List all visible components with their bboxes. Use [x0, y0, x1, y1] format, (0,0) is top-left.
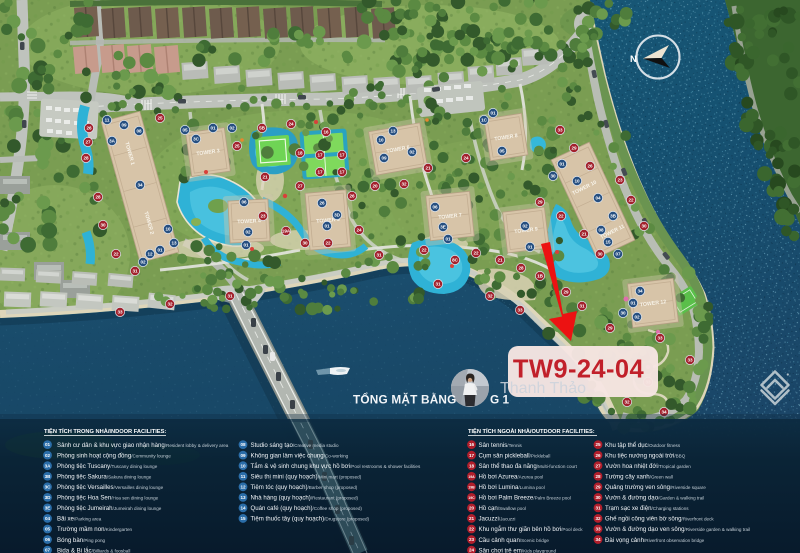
- svg-text:31: 31: [579, 304, 585, 309]
- svg-text:23: 23: [260, 214, 266, 219]
- svg-text:3A: 3A: [109, 139, 116, 144]
- svg-text:26: 26: [595, 453, 601, 458]
- svg-text:22: 22: [421, 248, 427, 253]
- svg-text:Tiệm thuốc tây (quy hoạch)/Dru: Tiệm thuốc tây (quy hoạch)/Drugstore (pr…: [251, 516, 370, 523]
- svg-text:08: 08: [240, 442, 246, 447]
- svg-text:Phòng tiệc Sakura/Sakura dinin: Phòng tiệc Sakura/Sakura dining lounge: [57, 473, 152, 480]
- svg-text:06: 06: [432, 205, 438, 210]
- svg-text:Trường mầm non/Kindergarten: Trường mầm non/Kindergarten: [57, 526, 133, 533]
- svg-text:TOWER 4: TOWER 4: [237, 218, 261, 225]
- svg-text:31: 31: [132, 269, 138, 274]
- svg-text:17: 17: [317, 170, 323, 175]
- svg-text:3B: 3B: [45, 474, 52, 479]
- svg-text:07: 07: [615, 252, 621, 257]
- svg-text:31: 31: [435, 282, 441, 287]
- svg-text:3E: 3E: [45, 506, 51, 511]
- svg-text:Cầu cảnh quan/Scenic bridge: Cầu cảnh quan/Scenic bridge: [479, 537, 550, 544]
- svg-text:3A: 3A: [45, 463, 52, 468]
- svg-text:22: 22: [473, 251, 479, 256]
- svg-text:10: 10: [240, 463, 246, 468]
- svg-text:28: 28: [95, 195, 101, 200]
- svg-text:N: N: [630, 54, 637, 65]
- svg-text:31: 31: [595, 506, 601, 511]
- svg-text:17: 17: [469, 453, 475, 458]
- svg-text:02: 02: [245, 230, 251, 235]
- svg-text:33: 33: [595, 527, 601, 532]
- svg-text:Studio sáng tạo/Creative media: Studio sáng tạo/Creative media studio: [251, 442, 340, 449]
- svg-text:26: 26: [86, 126, 92, 131]
- svg-text:04: 04: [595, 196, 601, 201]
- svg-text:29: 29: [537, 200, 543, 205]
- svg-text:06: 06: [241, 200, 247, 205]
- svg-text:33: 33: [517, 308, 523, 313]
- svg-text:Nhà hàng (quy hoạch)/Restauran: Nhà hàng (quy hoạch)/Restaurant (propose…: [251, 495, 359, 502]
- svg-text:19B: 19B: [468, 485, 475, 489]
- svg-text:Hồ bơi Palm Breeze/Palm Breeze: Hồ bơi Palm Breeze/Palm Breeze pool: [479, 495, 571, 502]
- svg-text:10: 10: [574, 179, 580, 184]
- svg-text:5B: 5B: [259, 126, 266, 131]
- svg-text:02: 02: [634, 315, 640, 320]
- svg-text:25: 25: [157, 116, 163, 121]
- svg-text:16: 16: [323, 130, 329, 135]
- svg-text:21: 21: [262, 175, 268, 180]
- svg-text:11: 11: [105, 118, 110, 123]
- svg-text:22: 22: [628, 198, 634, 203]
- svg-text:Bida & Bi lắc/Billiards & foos: Bida & Bi lắc/Billiards & foosball: [57, 547, 130, 553]
- svg-text:27: 27: [297, 184, 303, 189]
- svg-text:10: 10: [378, 138, 384, 143]
- svg-text:13: 13: [171, 241, 177, 246]
- svg-text:17: 17: [339, 153, 345, 158]
- svg-text:28: 28: [595, 474, 601, 479]
- svg-text:24: 24: [469, 548, 475, 553]
- svg-text:Đài vọng cảnh/Riverfront obser: Đài vọng cảnh/Riverfront observation bri…: [605, 537, 705, 544]
- svg-text:08: 08: [136, 129, 142, 134]
- svg-text:08: 08: [598, 228, 604, 233]
- svg-text:33: 33: [117, 310, 123, 315]
- svg-text:23: 23: [617, 178, 623, 183]
- svg-text:28: 28: [518, 266, 524, 271]
- svg-text:Phòng tiệc Jumeirah/Jumeirah d: Phòng tiệc Jumeirah/Jumeirah dining loun…: [57, 505, 162, 512]
- svg-text:TỔNG MẶT BẰNG: TỔNG MẶT BẰNG: [353, 393, 457, 407]
- svg-text:33: 33: [557, 128, 563, 133]
- svg-text:33: 33: [657, 336, 663, 341]
- svg-text:Hồ bơi Lumina/Lumina pool: Hồ bơi Lumina/Lumina pool: [479, 484, 545, 491]
- svg-text:TIỆN TÍCH TRONG NHÀ/INDOOR FAC: TIỆN TÍCH TRONG NHÀ/INDOOR FACILITIES:: [44, 427, 166, 435]
- svg-text:3C: 3C: [45, 484, 52, 489]
- svg-text:Sân tennis/Tennis: Sân tennis/Tennis: [479, 442, 523, 449]
- svg-text:09: 09: [381, 156, 387, 161]
- svg-text:11: 11: [241, 474, 246, 479]
- svg-text:13: 13: [240, 495, 246, 500]
- svg-text:22: 22: [113, 252, 119, 257]
- svg-text:Quảng trường ven sông/Riversid: Quảng trường ven sông/Riverside square: [605, 484, 706, 491]
- svg-text:01: 01: [559, 162, 565, 167]
- svg-text:29: 29: [607, 326, 613, 331]
- svg-text:Tường cây xanh/Green wall: Tường cây xanh/Green wall: [605, 473, 673, 480]
- svg-text:TIỆN TÍCH NGOÀI NHÀ/OUTDOOR FA: TIỆN TÍCH NGOÀI NHÀ/OUTDOOR FACILITIES:: [468, 427, 595, 435]
- svg-text:05: 05: [45, 527, 51, 532]
- svg-text:Sảnh cư dân & khu vực giao nhậ: Sảnh cư dân & khu vực giao nhận hàng/Res…: [57, 442, 229, 449]
- svg-text:Khu tập thể dục/Outdoor fitnes: Khu tập thể dục/Outdoor fitness: [605, 442, 681, 449]
- svg-text:27: 27: [595, 463, 601, 468]
- svg-text:18: 18: [469, 463, 475, 468]
- svg-text:Khu tiệc nướng ngoài trời/BBQ: Khu tiệc nướng ngoài trời/BBQ: [605, 452, 686, 459]
- svg-text:30: 30: [302, 241, 308, 246]
- svg-text:26: 26: [587, 164, 593, 169]
- svg-text:32: 32: [624, 400, 630, 405]
- svg-text:Hồ bơi Azurea/Azurea pool: Hồ bơi Azurea/Azurea pool: [479, 473, 544, 480]
- svg-text:Ghế ngồi công viên bờ sông/Riv: Ghế ngồi công viên bờ sông/Riverfront de…: [605, 516, 714, 523]
- svg-text:04: 04: [45, 516, 51, 521]
- svg-text:3D: 3D: [334, 213, 341, 218]
- svg-text:22: 22: [325, 241, 331, 246]
- svg-text:G 1: G 1: [490, 393, 509, 407]
- svg-text:20: 20: [469, 506, 475, 511]
- svg-text:18: 18: [297, 151, 303, 156]
- svg-text:15: 15: [605, 240, 611, 245]
- svg-text:28: 28: [83, 156, 89, 161]
- svg-text:26: 26: [349, 194, 355, 199]
- svg-text:34: 34: [595, 537, 601, 542]
- svg-text:12: 12: [240, 484, 246, 489]
- svg-text:30: 30: [550, 174, 556, 179]
- svg-text:Cụm sân pickleball/Pickleball: Cụm sân pickleball/Pickleball: [479, 452, 551, 459]
- svg-text:01: 01: [324, 224, 330, 229]
- svg-text:21: 21: [425, 166, 431, 171]
- svg-text:30: 30: [641, 224, 647, 229]
- svg-text:Siêu thị mini (quy hoạch)/Mini: Siêu thị mini (quy hoạch)/Mini mart (pro…: [251, 473, 362, 480]
- svg-text:01: 01: [527, 245, 533, 250]
- svg-text:Tiệm tóc (quy hoạch)/Barber sh: Tiệm tóc (quy hoạch)/Barber shop (propos…: [251, 484, 358, 491]
- svg-text:30: 30: [100, 223, 106, 228]
- svg-text:02: 02: [409, 150, 415, 155]
- svg-text:26: 26: [319, 201, 325, 206]
- svg-text:29: 29: [595, 484, 601, 489]
- svg-text:25: 25: [234, 144, 240, 149]
- svg-text:34: 34: [661, 410, 667, 415]
- svg-text:1C: 1C: [481, 118, 488, 123]
- svg-text:24: 24: [463, 156, 469, 161]
- svg-text:32: 32: [595, 516, 601, 521]
- svg-text:19C: 19C: [468, 496, 475, 500]
- svg-text:21: 21: [581, 232, 587, 237]
- svg-text:01: 01: [210, 126, 216, 131]
- svg-text:01: 01: [243, 243, 249, 248]
- svg-text:21: 21: [497, 258, 503, 263]
- svg-text:30: 30: [620, 311, 626, 316]
- svg-text:Sân chơi trẻ em/Kids playgroun: Sân chơi trẻ em/Kids playground: [479, 547, 557, 553]
- svg-text:12: 12: [147, 252, 153, 257]
- svg-text:10: 10: [165, 227, 171, 232]
- svg-text:34: 34: [137, 183, 143, 188]
- svg-text:Bãi xe/Parking area: Bãi xe/Parking area: [57, 516, 102, 523]
- svg-text:23: 23: [469, 537, 475, 542]
- svg-text:20: 20: [372, 184, 378, 189]
- svg-text:19A: 19A: [282, 229, 291, 234]
- svg-text:Sân thể thao đa năng/Multi-fun: Sân thể thao đa năng/Multi-function cour…: [479, 463, 578, 470]
- svg-text:3D: 3D: [45, 495, 52, 500]
- svg-text:3C: 3C: [193, 137, 200, 142]
- svg-text:22: 22: [469, 527, 475, 532]
- svg-text:17: 17: [317, 153, 323, 158]
- svg-text:1B: 1B: [537, 274, 544, 279]
- svg-text:07: 07: [45, 548, 51, 553]
- svg-text:27: 27: [85, 140, 91, 145]
- svg-text:Thanh Thảo: Thanh Thảo: [500, 380, 586, 397]
- svg-text:Bóng bàn/Ping pong: Bóng bàn/Ping pong: [57, 537, 106, 544]
- svg-text:Khu ngắm thư giãn bên hồ bơi/P: Khu ngắm thư giãn bên hồ bơi/Pool deck: [479, 526, 584, 533]
- svg-text:Phòng sinh hoạt cộng đồng/Comm: Phòng sinh hoạt cộng đồng/Community loun…: [57, 452, 171, 459]
- svg-text:Jacuzzi/Jacuzzi: Jacuzzi/Jacuzzi: [479, 516, 516, 523]
- svg-text:17: 17: [339, 170, 345, 175]
- svg-text:32: 32: [401, 182, 407, 187]
- svg-text:29: 29: [571, 146, 577, 151]
- svg-text:09: 09: [121, 123, 127, 128]
- svg-text:31: 31: [227, 294, 233, 299]
- svg-text:01: 01: [445, 237, 451, 242]
- svg-text:Phòng tiệc Versailles/Versaill: Phòng tiệc Versailles/Versailles dining …: [57, 484, 164, 491]
- svg-text:06: 06: [45, 537, 51, 542]
- svg-text:31: 31: [376, 253, 382, 258]
- svg-text:24: 24: [356, 228, 362, 233]
- svg-text:09: 09: [240, 453, 246, 458]
- svg-text:02: 02: [45, 453, 51, 458]
- svg-text:01: 01: [630, 301, 636, 306]
- svg-text:25: 25: [595, 442, 601, 447]
- svg-text:29: 29: [563, 290, 569, 295]
- svg-text:33: 33: [687, 358, 693, 363]
- svg-text:21: 21: [469, 516, 475, 521]
- svg-text:Hồ cạn/Swallow pool: Hồ cạn/Swallow pool: [479, 505, 526, 512]
- svg-text:Phòng tiệc Hoa Sen/Hoa sen din: Phòng tiệc Hoa Sen/Hoa sen dining lounge: [57, 495, 159, 502]
- svg-text:02: 02: [140, 260, 146, 265]
- svg-text:Trạm sạc xe điện/Charging stat: Trạm sạc xe điện/Charging stations: [605, 505, 689, 512]
- svg-text:02: 02: [229, 126, 235, 131]
- svg-text:02: 02: [522, 224, 528, 229]
- svg-text:15: 15: [240, 516, 246, 521]
- svg-text:Quán café (quy hoạch)/Coffee s: Quán café (quy hoạch)/Coffee shop (propo…: [251, 505, 363, 512]
- svg-text:Phòng tiệc Tuscany/Tuscany din: Phòng tiệc Tuscany/Tuscany dining lounge: [57, 463, 158, 470]
- svg-text:19A: 19A: [468, 475, 475, 479]
- svg-text:13: 13: [390, 129, 396, 134]
- svg-text:22: 22: [558, 214, 564, 219]
- svg-text:01: 01: [45, 442, 51, 447]
- svg-text:05: 05: [182, 128, 188, 133]
- svg-text:Vườn & đường dạo/Garden & walk: Vườn & đường dạo/Garden & walking trail: [605, 495, 704, 502]
- svg-text:14: 14: [240, 506, 246, 511]
- svg-text:32: 32: [487, 294, 493, 299]
- svg-text:8C: 8C: [452, 258, 459, 263]
- svg-text:Vườn hoa nhiệt đới/Tropical ga: Vườn hoa nhiệt đới/Tropical garden: [605, 463, 691, 470]
- svg-text:30: 30: [595, 495, 601, 500]
- svg-text:34: 34: [637, 289, 643, 294]
- svg-text:Tắm & vệ sinh chung khu vực hồ: Tắm & vệ sinh chung khu vực hồ bơi/Pool …: [251, 463, 421, 470]
- svg-text:Vườn & đường dạo ven sông/Rive: Vườn & đường dạo ven sông/Riverside gard…: [605, 526, 750, 533]
- svg-text:05: 05: [499, 149, 505, 154]
- svg-text:Không gian làm việc chung/Co-w: Không gian làm việc chung/Co-working: [251, 452, 349, 459]
- svg-text:01: 01: [157, 248, 163, 253]
- svg-text:3B: 3B: [610, 214, 617, 219]
- svg-text:30: 30: [597, 252, 603, 257]
- svg-text:24: 24: [288, 122, 294, 127]
- svg-text:3E: 3E: [440, 225, 446, 230]
- svg-text:16: 16: [469, 442, 475, 447]
- svg-text:32: 32: [167, 302, 173, 307]
- svg-text:01: 01: [490, 111, 496, 116]
